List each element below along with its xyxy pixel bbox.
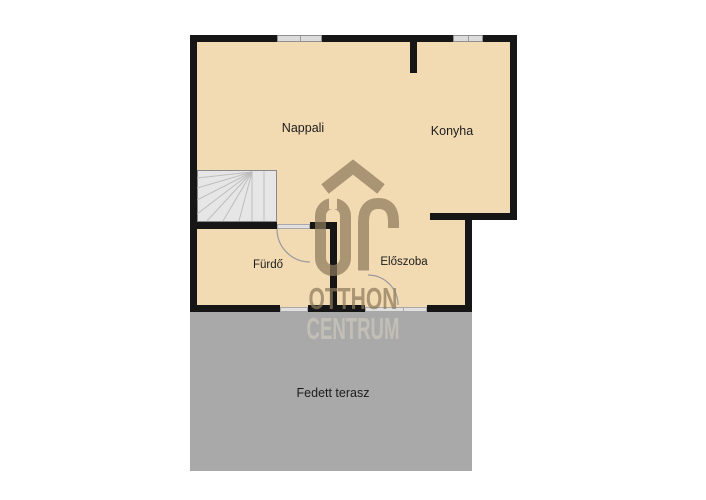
wall-left — [190, 35, 197, 312]
terrace-door-threshold — [365, 307, 427, 312]
room-label-nappali: Nappali — [282, 121, 324, 135]
wall-hall-right — [465, 213, 472, 312]
room-label-furdo: Fürdő — [253, 259, 283, 271]
window-mullion-tick — [468, 36, 469, 41]
bathroom-door-threshold — [277, 224, 310, 229]
living-room-window — [277, 35, 322, 42]
room-label-fedett-terasz: Fedett terasz — [297, 386, 370, 400]
window-mullion-tick — [300, 36, 301, 41]
bathroom-terrace-opening — [280, 307, 308, 312]
wall-right — [510, 35, 517, 220]
kitchen-window — [453, 35, 483, 42]
wall-below-stairs-left — [190, 222, 277, 229]
door-leaf-tick — [403, 308, 404, 311]
wall-bottom-segment-3 — [427, 305, 472, 312]
wall-kitchen-bottom — [430, 213, 517, 220]
floorplan-canvas: OTTHON CENTRUM Nappali Konyha Fürdő Elős… — [0, 0, 706, 500]
room-label-konyha: Konyha — [431, 124, 473, 138]
wall-bottom-segment-2 — [308, 305, 365, 312]
wall-stub-kitchen-divider — [410, 42, 417, 73]
wall-bath-hall-divider — [330, 229, 337, 312]
room-label-eloszoba: Előszoba — [380, 256, 427, 268]
wall-bottom-segment-1 — [190, 305, 280, 312]
wall-below-stairs-right — [310, 222, 337, 229]
